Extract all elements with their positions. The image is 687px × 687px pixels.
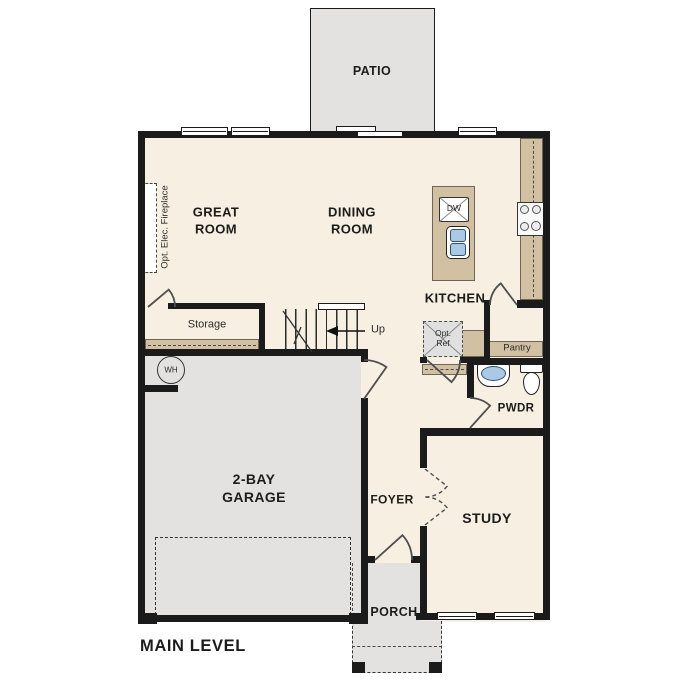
stairs-up-label: Up [371,324,385,337]
stair-break-line [283,311,312,352]
floor-plan-canvas: PATIO GREAT ROOM DINING ROOM KITCHEN 2-B… [0,0,687,687]
door-swing-overlay [0,0,687,687]
main-level-title: MAIN LEVEL [140,636,246,657]
garage-label: 2-BAY GARAGE [222,471,286,507]
dining-room-label: DINING ROOM [328,204,376,237]
stair-direction-arrowhead [326,326,338,336]
porch-label: PORCH [370,604,417,620]
powder-label: PWDR [498,402,535,417]
study-french-door-top [425,469,447,497]
water-heater-label: WH [164,365,177,374]
storage-door-swing [148,290,175,307]
front-door-swing [375,535,412,560]
patio-label: PATIO [353,63,391,79]
storage-label: Storage [188,319,227,332]
mud-hall-door-swing [427,360,460,382]
garage-entry-door-swing [364,360,386,399]
optional-fireplace-label: Opt. Elec. Fireplace [160,185,171,268]
pantry-door-swing [490,283,517,305]
study-label: STUDY [462,510,511,528]
great-room-label: GREAT ROOM [193,204,240,237]
dishwasher-label: DW [447,204,461,214]
pantry-label: Pantry [503,344,530,355]
study-french-door-bottom [425,497,447,525]
foyer-label: FOYER [370,492,413,507]
powder-door-swing [470,398,490,428]
kitchen-label: KITCHEN [425,291,486,308]
optional-fridge-label: Opt. Ref [435,329,451,349]
